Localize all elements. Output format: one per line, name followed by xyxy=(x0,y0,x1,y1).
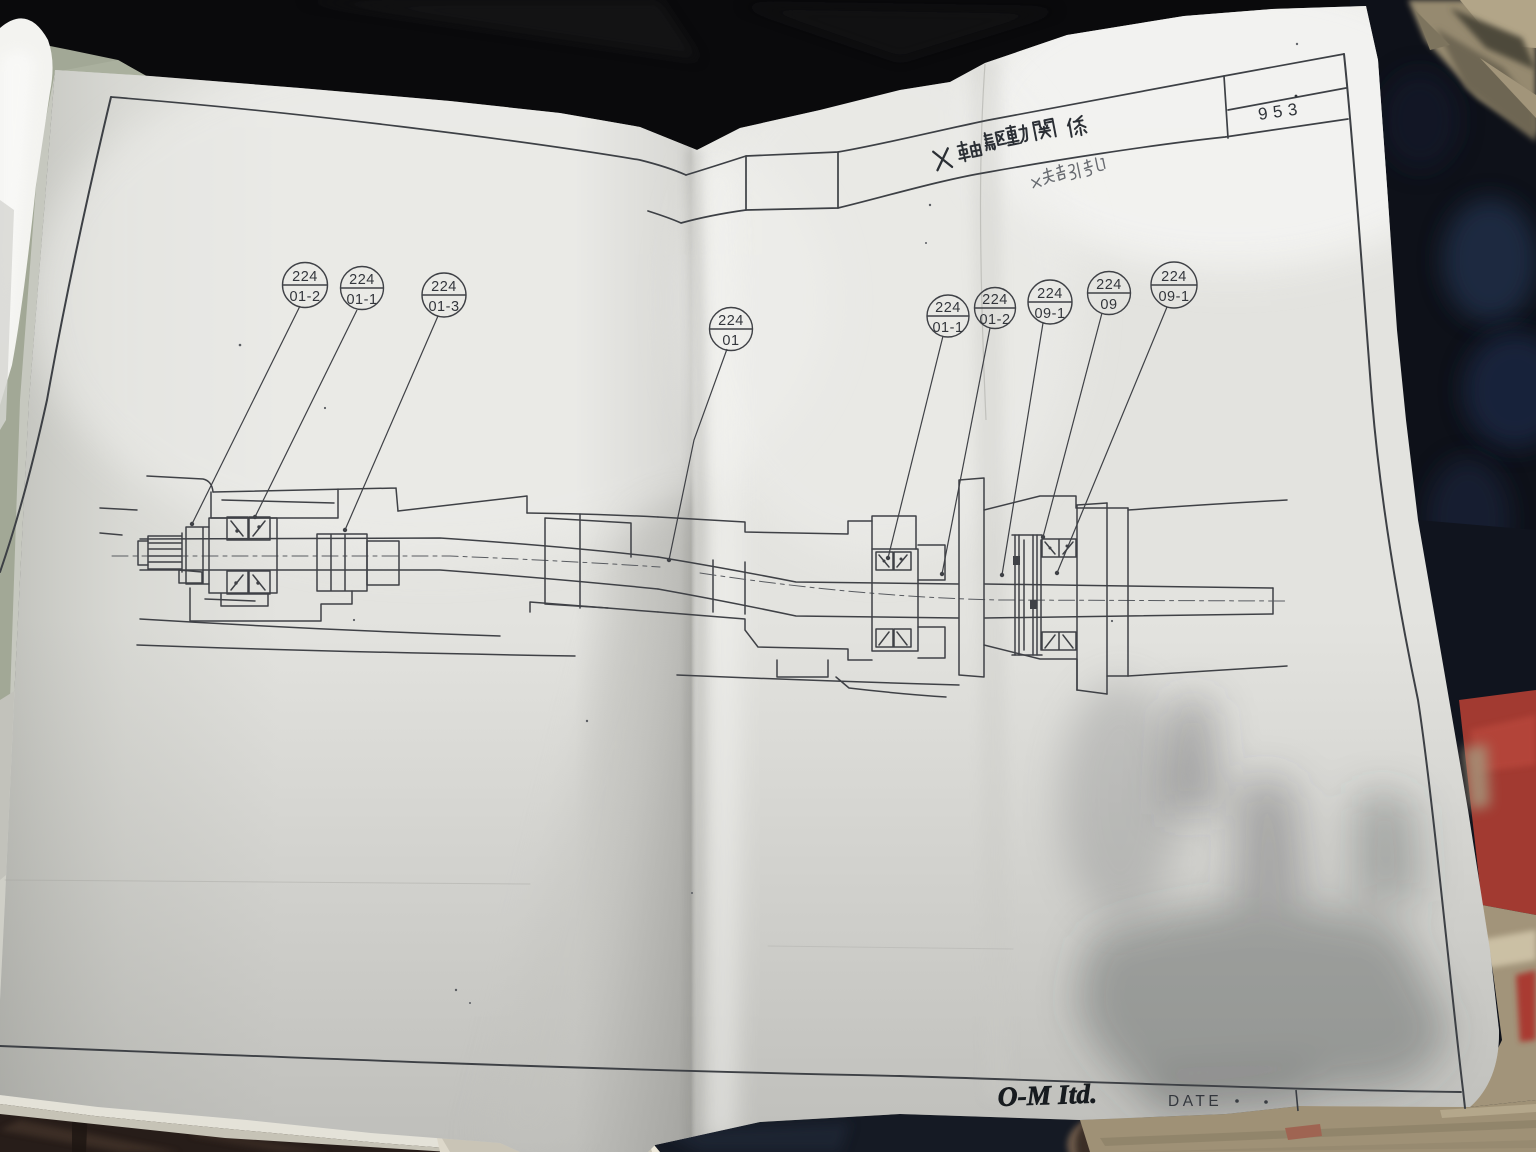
svg-text:01-1: 01-1 xyxy=(932,320,963,336)
svg-text:DATE: DATE xyxy=(1168,1093,1222,1110)
svg-text:224: 224 xyxy=(349,272,375,288)
svg-text:01-2: 01-2 xyxy=(979,312,1010,328)
svg-text:01: 01 xyxy=(722,333,739,349)
svg-text:09-1: 09-1 xyxy=(1158,289,1189,305)
svg-text:01-1: 01-1 xyxy=(346,292,377,308)
svg-text:01-3: 01-3 xyxy=(428,299,459,315)
svg-text:09-1: 09-1 xyxy=(1034,306,1065,322)
svg-text:224: 224 xyxy=(935,300,961,316)
svg-text:224: 224 xyxy=(1037,286,1063,302)
svg-text:09: 09 xyxy=(1100,297,1117,313)
svg-text:224: 224 xyxy=(431,279,457,295)
svg-text:224: 224 xyxy=(292,269,318,285)
svg-text:224: 224 xyxy=(1096,277,1122,293)
svg-text:O-M Itd.: O-M Itd. xyxy=(997,1078,1097,1112)
svg-text:224: 224 xyxy=(718,313,744,329)
svg-text:01-2: 01-2 xyxy=(289,289,320,305)
svg-text:224: 224 xyxy=(1161,269,1187,285)
svg-text:224: 224 xyxy=(982,292,1008,308)
